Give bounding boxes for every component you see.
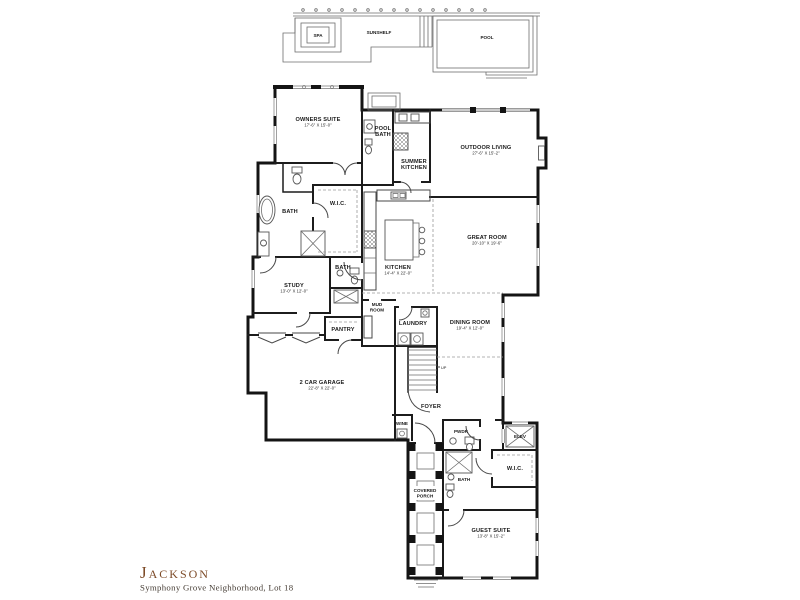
great-room-dims: 20'-10" X 19'-6"	[472, 241, 502, 246]
title-block: Jackson Symphony Grove Neighborhood, Lot…	[140, 563, 294, 593]
study-dims: 13'-0" X 12'-0"	[280, 289, 308, 294]
summer-kitchen-label-2: KITCHEN	[401, 165, 427, 171]
pool	[433, 16, 537, 78]
floor-plan-canvas: SPA SUNSHELF POOL	[0, 0, 800, 600]
outdoor-living-dims: 27'-6" X 15'-2"	[472, 151, 500, 156]
covered-porch	[408, 443, 444, 587]
room-labels: OWNERS SUITE 17'-6" X 15'-0" POOL BATH S…	[280, 117, 527, 539]
owners-wic-label: W.I.C.	[330, 201, 346, 207]
dining-room-dims: 19'-4" X 12'-0"	[456, 326, 484, 331]
fireplace	[539, 146, 545, 160]
guest-bath-label: BATH	[458, 477, 471, 482]
owners-bath-label: BATH	[282, 209, 298, 215]
owners-wc-toilet	[293, 174, 301, 184]
dryer	[411, 333, 423, 345]
hall-bath-label: BATH	[335, 265, 351, 271]
ceiling-lines	[362, 199, 503, 357]
interior-walls	[248, 110, 537, 578]
kitchen-range	[364, 231, 376, 248]
garage-dims: 22'-8" X 22'-0"	[308, 386, 336, 391]
mud-room-label-1: MUD	[372, 302, 383, 307]
paver-dots	[302, 9, 487, 12]
foyer-label: FOYER	[421, 404, 441, 410]
washer	[398, 333, 410, 345]
plan-name: Jackson	[140, 563, 210, 582]
mud-room-label-2: ROOM	[370, 308, 384, 313]
laundry-label: LAUNDRY	[399, 321, 427, 327]
powder-sink	[450, 438, 456, 444]
powder-label: PWDR	[454, 429, 469, 434]
wine-label: WINE	[396, 421, 408, 426]
front-steps	[414, 580, 438, 587]
stairs: UP	[408, 350, 447, 412]
stairs-up-label: UP	[441, 365, 447, 370]
pantry-label: PANTRY	[331, 327, 354, 333]
pool-label: POOL	[480, 35, 493, 40]
guest-wic-label: W.I.C.	[507, 466, 523, 472]
kitchen-dims: 14'-4" X 22'-0"	[384, 271, 412, 276]
elevator-label: ELEV	[514, 434, 527, 439]
pool-bath-label-2: BATH	[375, 132, 391, 138]
spa-label: SPA	[313, 33, 323, 38]
pool-area: SPA SUNSHELF POOL	[283, 9, 540, 78]
guest-suite-dims: 13'-8" X 15'-2"	[477, 534, 505, 539]
owners-suite-dims: 17'-6" X 15'-0"	[304, 123, 332, 128]
sunshelf-label: SUNSHELF	[367, 30, 392, 35]
kitchen-island	[385, 220, 413, 260]
plan-subtitle: Symphony Grove Neighborhood, Lot 18	[140, 583, 294, 593]
summer-kitchen-grill	[393, 133, 408, 150]
floor-plan-page: SPA SUNSHELF POOL	[0, 0, 800, 600]
covered-porch-label-1: COVERED	[414, 488, 437, 493]
covered-porch-label-2: PORCH	[417, 494, 434, 499]
